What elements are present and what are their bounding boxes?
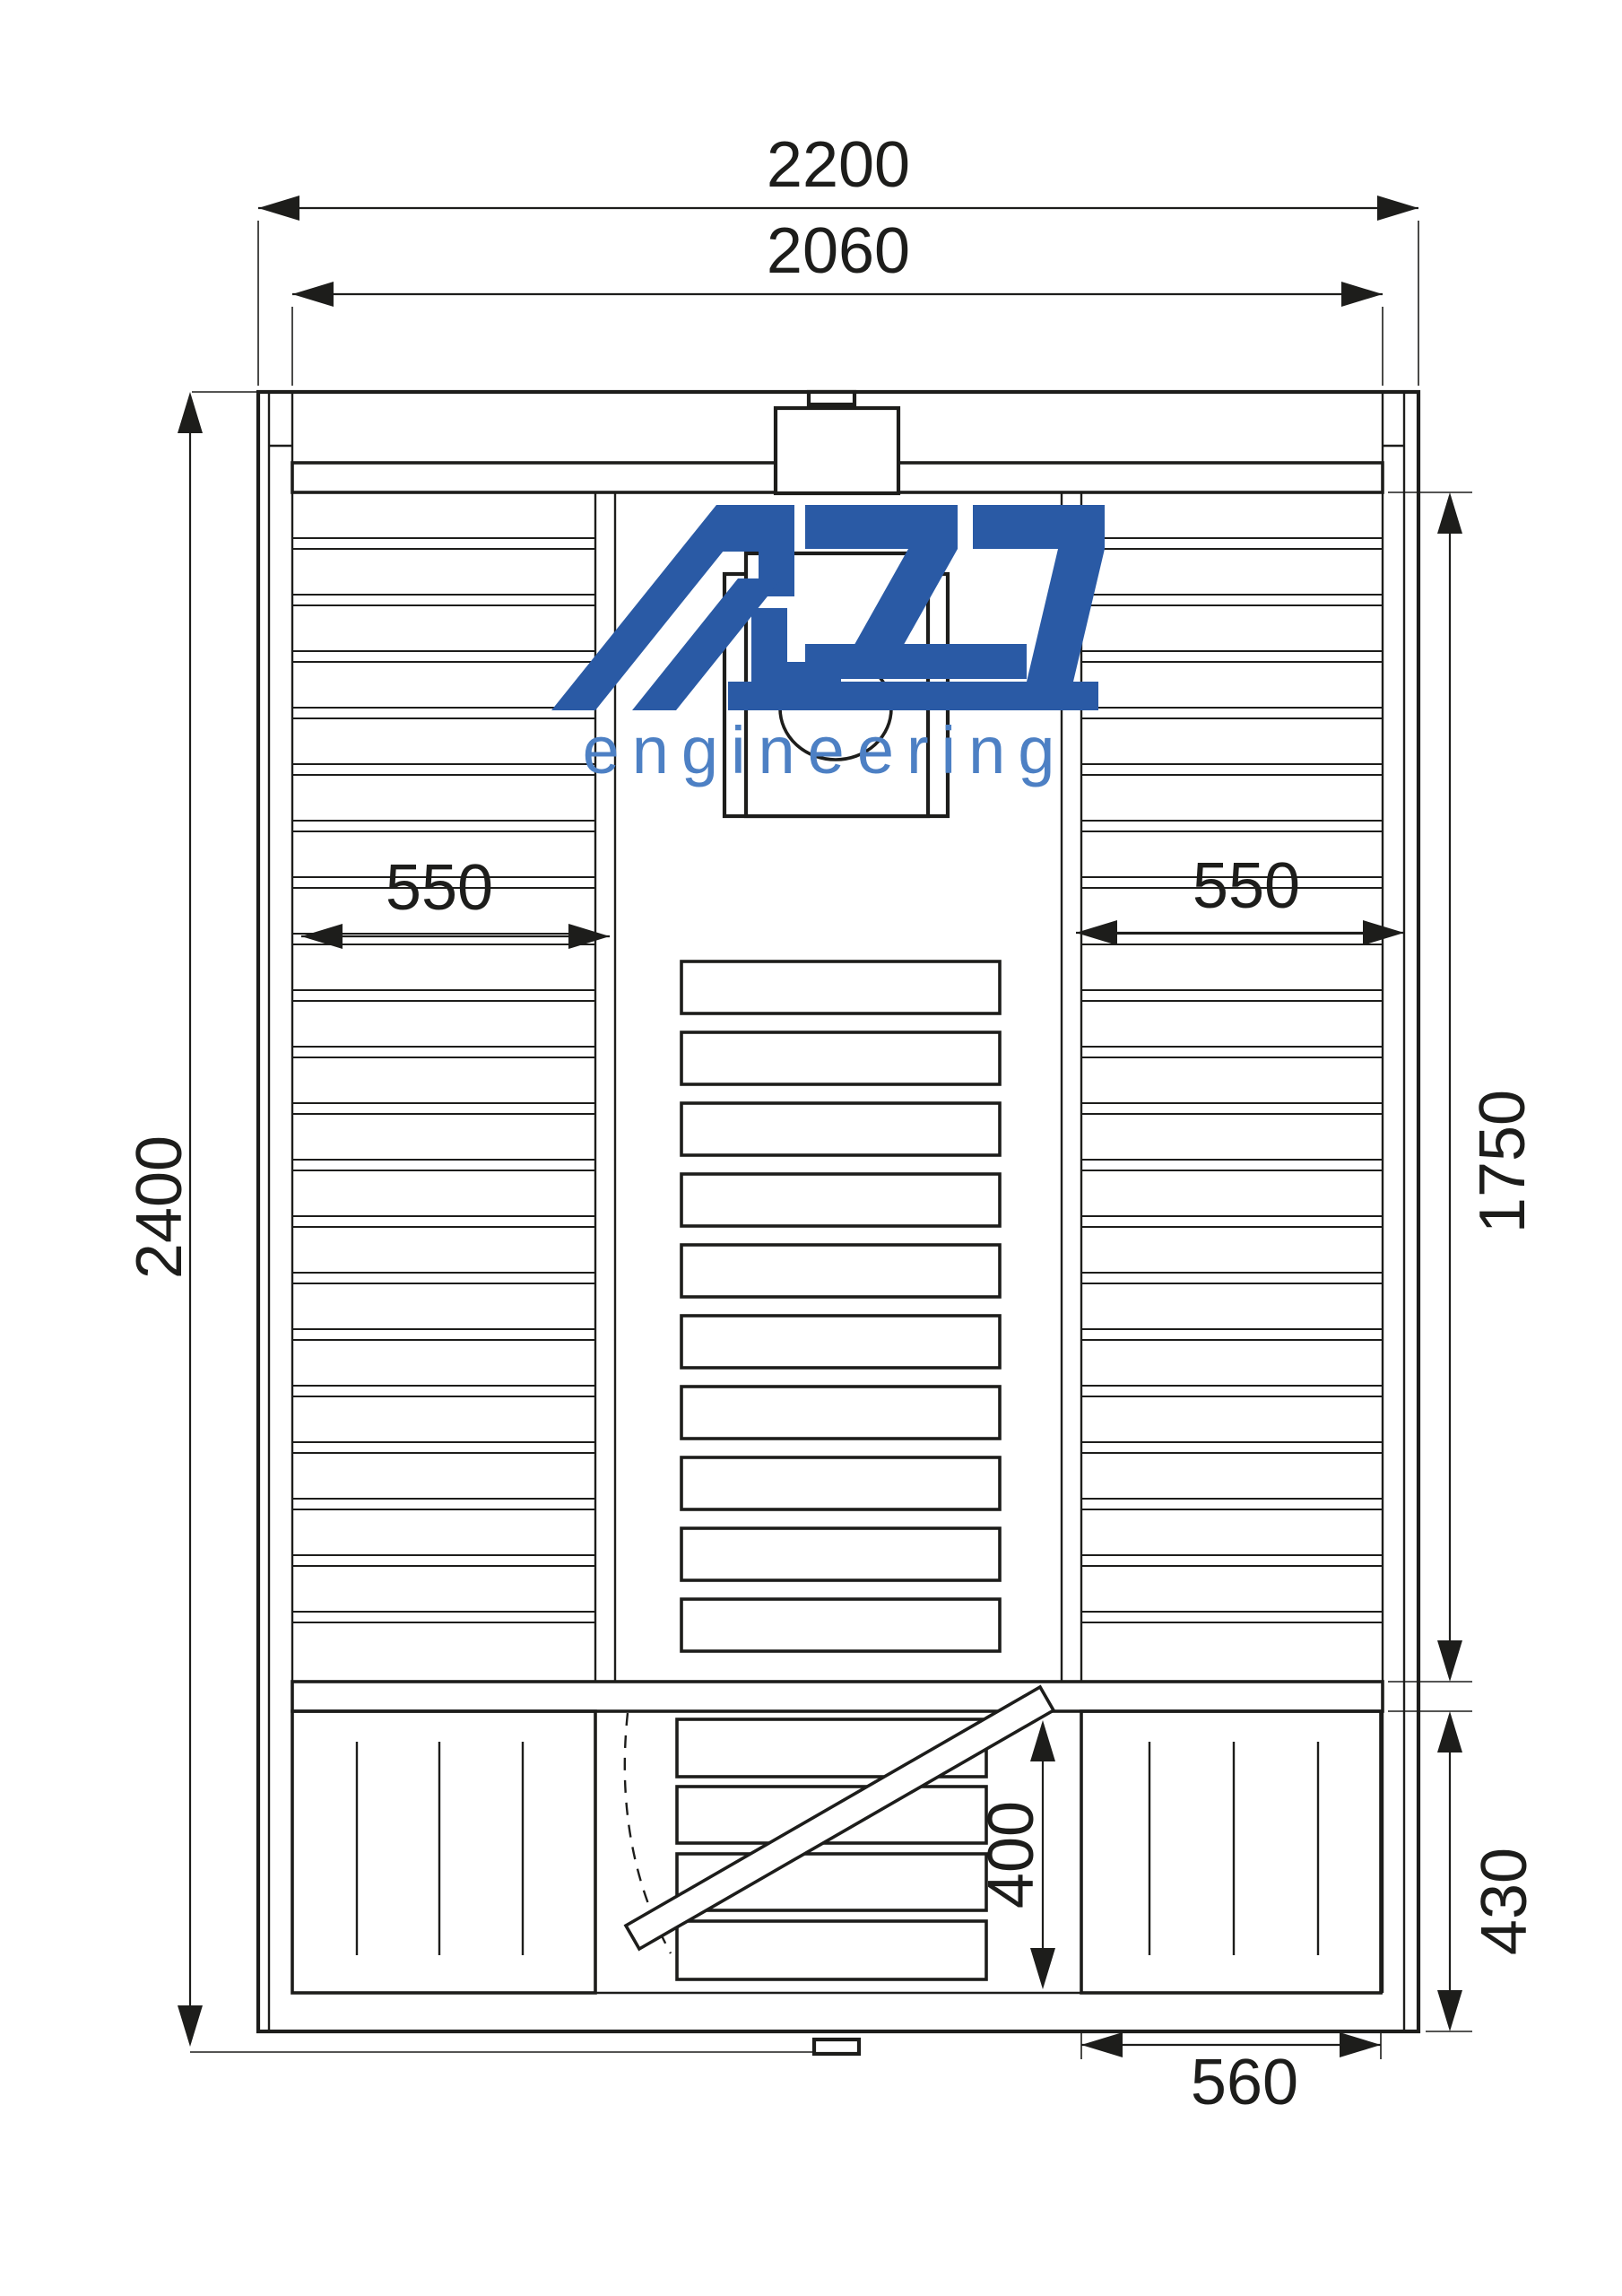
dim-door-opening-label: 400 <box>976 1801 1047 1909</box>
arrowhead-right-icon <box>1341 282 1383 307</box>
arrowhead-up-icon <box>178 392 203 433</box>
vestibule-bench-left <box>292 1711 595 1993</box>
dim-right-bench: 550 <box>1076 850 1404 945</box>
dim-vestibule-bench: 560 <box>1081 2031 1381 2118</box>
arrowhead-down-icon <box>1030 1948 1055 1989</box>
dim-inner-width-label: 2060 <box>767 215 910 287</box>
stove-flue <box>776 408 898 493</box>
dim-vestibule-depth: 430 <box>1388 1711 1540 2031</box>
step-band <box>292 1682 1383 1711</box>
dim-left-bench-label: 550 <box>386 852 493 924</box>
arrowhead-left-icon <box>292 282 334 307</box>
arrowhead-right-icon <box>1377 196 1418 221</box>
arrowhead-up-icon <box>1030 1720 1055 1761</box>
door-sill-marker <box>814 2039 859 2054</box>
vestibule-bench-right <box>1081 1711 1381 1993</box>
dim-vestibule-depth-label: 430 <box>1469 1848 1540 1955</box>
left-bench-slats <box>292 538 595 1622</box>
dim-right-bench-label: 550 <box>1193 850 1300 922</box>
arrowhead-up-icon <box>1437 1711 1462 1752</box>
arrowhead-down-icon <box>1437 1640 1462 1682</box>
azs-logo: engineering <box>551 505 1105 787</box>
cabin-structure <box>258 392 1418 2054</box>
right-bench-slats <box>1081 538 1383 1622</box>
chimney-cap <box>809 392 854 404</box>
arrowhead-left-icon <box>1081 2032 1123 2057</box>
dim-main-room-depth-label: 1750 <box>1467 1090 1539 1233</box>
vestibule <box>292 1687 1381 2054</box>
dim-vestibule-bench-label: 560 <box>1191 2047 1298 2118</box>
sauna-floor-plan: 2200 2060 2400 1750 <box>0 0 1622 2296</box>
arrowhead-down-icon <box>178 2005 203 2047</box>
dim-inner-width: 2060 <box>292 215 1383 386</box>
azs-logo-subtitle: engineering <box>583 713 1068 787</box>
dim-overall-width-label: 2200 <box>767 129 910 201</box>
arrowhead-down-icon <box>1437 1990 1462 2031</box>
technical-drawing-sheet: 2200 2060 2400 1750 <box>0 0 1622 2296</box>
dim-main-room-depth: 1750 <box>1388 492 1539 1682</box>
arrowhead-left-icon <box>258 196 299 221</box>
arrowhead-right-icon <box>1340 2032 1381 2057</box>
central-floor-boards <box>681 961 1000 1651</box>
arrowhead-up-icon <box>1437 492 1462 534</box>
dim-overall-depth-label: 2400 <box>124 1135 195 1279</box>
